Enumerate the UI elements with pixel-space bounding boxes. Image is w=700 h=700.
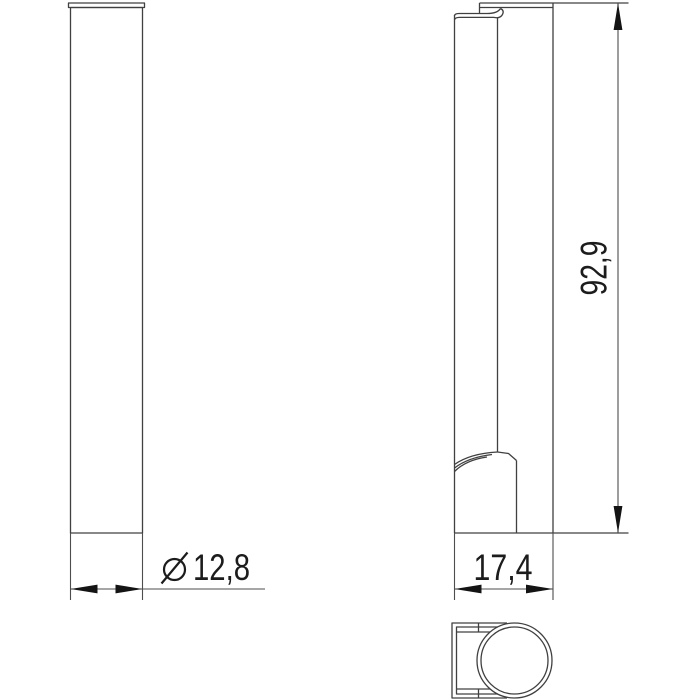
- tube-outer-circle: [477, 623, 552, 698]
- arrowhead-up-icon: [614, 3, 623, 30]
- diameter-symbol-icon: [162, 553, 188, 584]
- depth-dimension: 17,4: [455, 533, 554, 600]
- depth-value-label: 17,4: [474, 547, 533, 588]
- tube-inner-circle: [481, 627, 548, 694]
- front-view-top-cap: [69, 3, 145, 8]
- dimension-drawing: 12,8 17,4 92,9: [0, 0, 700, 700]
- clip-curl-inner: [455, 17, 495, 20]
- diameter-value-label: 12,8: [193, 547, 250, 588]
- height-dimension: 92,9: [574, 3, 623, 533]
- bottom-view-cross-section: [452, 623, 552, 698]
- clamp-outer-outline: [452, 623, 507, 698]
- arrowhead-right-icon: [116, 585, 143, 594]
- arrowhead-left-icon: [71, 585, 98, 594]
- technical-drawing-canvas: 12,8 17,4 92,9: [0, 0, 700, 700]
- front-view-body: [71, 8, 143, 534]
- clip-curl-outer: [455, 9, 501, 17]
- height-value-label: 92,9: [574, 241, 615, 296]
- dome-shoulder: [498, 452, 517, 461]
- arrowhead-down-icon: [614, 506, 623, 533]
- front-view-cylinder: [69, 3, 145, 533]
- diameter-dimension: 12,8: [71, 533, 266, 600]
